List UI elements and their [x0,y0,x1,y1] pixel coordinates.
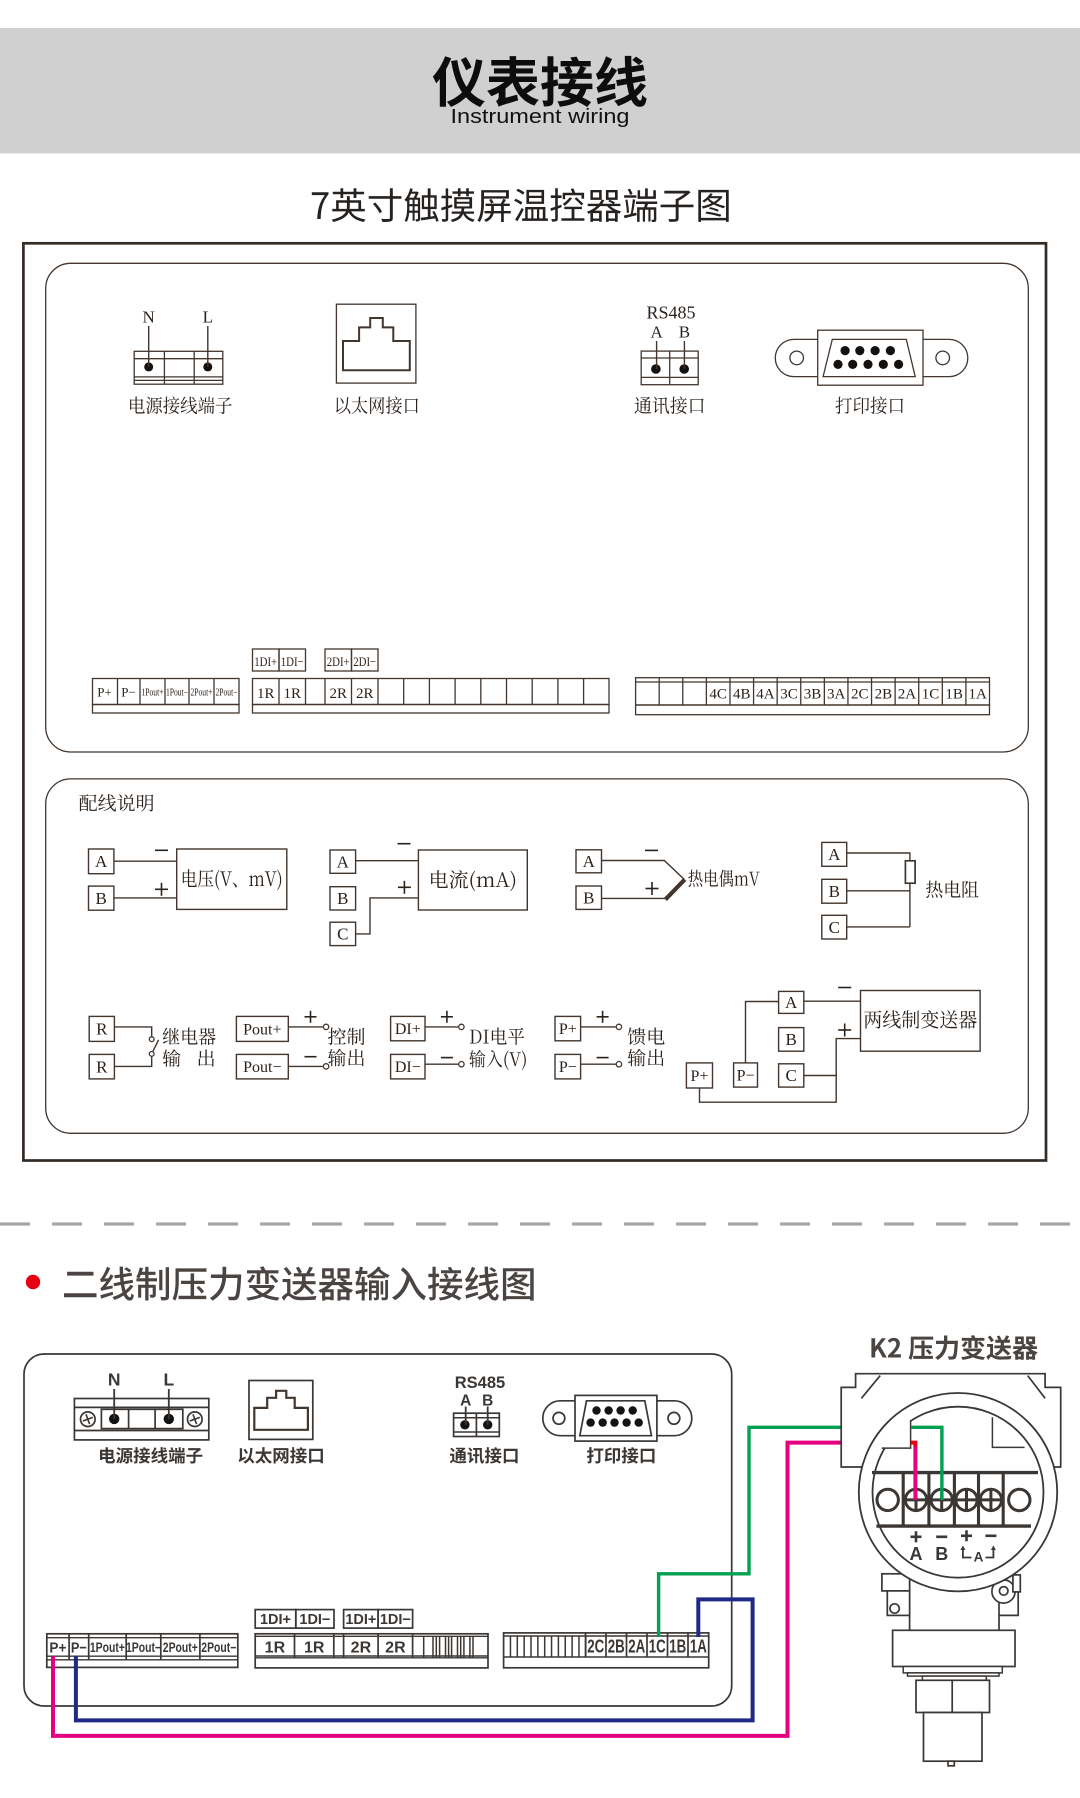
svg-text:A: A [785,993,798,1012]
svg-text:2A: 2A [628,1637,645,1657]
svg-text:1DI−: 1DI− [299,1612,330,1628]
svg-text:3C: 3C [780,687,798,703]
svg-text:2R: 2R [351,1640,372,1657]
svg-text:RS485: RS485 [455,1374,505,1392]
svg-text:B: B [786,1030,797,1049]
svg-text:1Pout+: 1Pout+ [142,688,164,699]
svg-text:1R: 1R [284,686,302,702]
svg-text:B: B [337,889,348,908]
svg-text:2R: 2R [330,686,348,702]
svg-text:4B: 4B [733,687,751,703]
svg-text:1A: 1A [690,1637,707,1657]
svg-text:N: N [108,1370,121,1390]
svg-text:1DI+: 1DI+ [345,1612,376,1628]
svg-text:A: A [583,852,596,871]
svg-text:2R: 2R [356,686,374,702]
svg-text:2R: 2R [385,1640,406,1657]
svg-text:2A: 2A [898,687,917,703]
svg-text:A: A [974,1550,984,1565]
svg-text:1R: 1R [265,1640,286,1657]
svg-text:B: B [679,323,690,342]
svg-text:B: B [829,882,840,901]
svg-text:3B: 3B [804,687,822,703]
svg-text:1R: 1R [257,686,275,702]
svg-text:C: C [337,925,348,944]
svg-text:1C: 1C [649,1637,666,1657]
svg-text:A: A [337,852,350,871]
svg-text:2B: 2B [875,687,893,703]
svg-text:1DI−: 1DI− [380,1612,411,1628]
svg-text:B: B [935,1544,948,1564]
svg-text:1R: 1R [304,1640,325,1657]
svg-text:2DI−: 2DI− [353,654,376,669]
svg-text:1Pout−: 1Pout− [166,688,188,699]
svg-text:R: R [96,1057,108,1076]
svg-text:P−: P− [71,1640,87,1657]
svg-text:L: L [203,308,213,327]
svg-text:2Pout−: 2Pout− [201,1640,236,1655]
svg-text:A: A [95,852,108,871]
svg-text:DI+: DI+ [395,1021,421,1038]
svg-text:1B: 1B [669,1637,686,1657]
svg-text:3A: 3A [827,687,846,703]
svg-text:2B: 2B [608,1637,625,1657]
svg-text:2Pout−: 2Pout− [216,688,238,699]
svg-text:2C: 2C [851,687,869,703]
svg-text:C: C [829,918,840,937]
svg-text:P+: P+ [49,1640,66,1657]
svg-text:1Pout+: 1Pout+ [90,1640,125,1655]
svg-text:1B: 1B [945,687,963,703]
svg-text:2C: 2C [587,1637,604,1657]
svg-text:C: C [786,1066,797,1085]
svg-text:A: A [650,323,663,342]
svg-text:L: L [163,1370,174,1390]
svg-text:4C: 4C [709,687,727,703]
svg-text:2Pout+: 2Pout+ [191,688,213,699]
svg-text:RS485: RS485 [646,303,695,323]
svg-text:B: B [96,889,107,908]
svg-text:1DI−: 1DI− [281,654,304,669]
svg-text:Instrument wiring: Instrument wiring [451,106,630,128]
svg-text:1DI+: 1DI+ [254,654,277,669]
svg-text:Pout−: Pout− [243,1059,281,1076]
svg-text:DI−: DI− [395,1059,421,1076]
svg-text:2Pout+: 2Pout+ [163,1640,198,1655]
svg-text:P−: P− [559,1059,577,1076]
svg-text:Pout+: Pout+ [243,1021,281,1038]
svg-text:1DI+: 1DI+ [260,1612,291,1628]
svg-text:A: A [828,845,841,864]
svg-text:P+: P+ [97,685,112,700]
svg-text:B: B [583,888,594,907]
svg-text:1A: 1A [969,687,988,703]
svg-text:R: R [96,1020,108,1039]
svg-text:1Pout−: 1Pout− [126,1640,161,1655]
svg-text:2DI+: 2DI+ [327,654,350,669]
svg-text:P+: P+ [690,1068,708,1085]
svg-text:N: N [143,308,155,327]
svg-text:P+: P+ [559,1021,577,1038]
svg-text:4A: 4A [756,687,775,703]
svg-text:1C: 1C [922,687,940,703]
svg-text:A: A [910,1544,923,1564]
svg-text:P−: P− [121,685,136,700]
svg-text:P−: P− [737,1067,755,1084]
